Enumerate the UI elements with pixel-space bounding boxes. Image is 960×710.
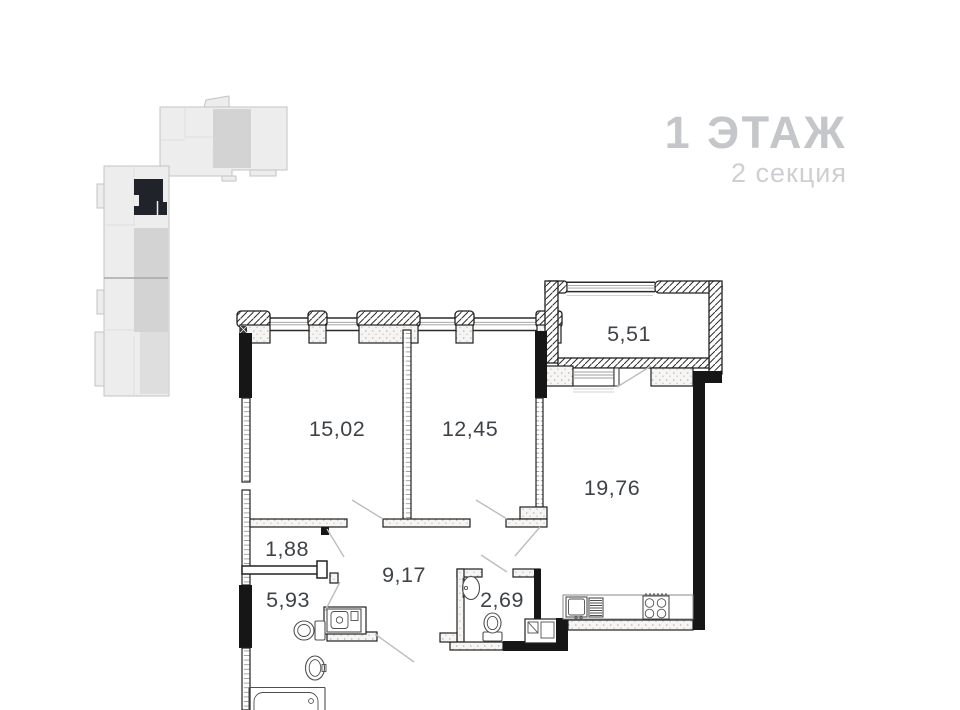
minimap-highlighted-unit	[134, 179, 167, 215]
building-minimap	[95, 96, 287, 396]
area-label-1: 15,02	[309, 417, 365, 441]
area-label-6: 9,17	[382, 563, 426, 587]
area-label-3: 5,51	[607, 322, 651, 346]
balcony-door-leaf	[617, 366, 651, 387]
stove-icon	[643, 594, 669, 619]
area-label-7: 5,93	[266, 588, 310, 612]
door-leaf-room2	[476, 500, 507, 519]
floor-title: 1 ЭТАЖ	[665, 107, 847, 158]
washing-machine-icon	[327, 609, 361, 632]
right-exterior-wall	[693, 371, 722, 630]
floorplan-page: 1 ЭТАЖ 2 секция	[0, 0, 960, 710]
floor-header: 1 ЭТАЖ 2 секция	[665, 107, 847, 188]
sink-icon-wc	[463, 577, 480, 600]
door-leaf-entry	[375, 634, 414, 662]
sink-icon-bathroom	[306, 656, 327, 680]
door-leaf-kitchen	[515, 527, 540, 556]
kitchen-sink-icon	[566, 597, 587, 619]
area-label-4: 19,76	[584, 476, 640, 500]
balcony-window	[573, 368, 619, 386]
area-label-5: 1,88	[265, 537, 309, 561]
door-leaf-wardrobe	[327, 529, 344, 557]
door-leaf-wc	[481, 555, 507, 572]
bathtub-icon	[249, 688, 325, 710]
area-label-8: 2,69	[480, 588, 524, 612]
toilet-icon-bathroom	[294, 621, 325, 640]
column-marker	[240, 326, 247, 333]
door-leaf-room1	[352, 500, 383, 519]
dish-rack-icon	[589, 598, 603, 617]
section-subtitle: 2 секция	[731, 158, 847, 188]
plumbing-shaft	[525, 619, 557, 643]
kitchen-counter	[563, 594, 693, 619]
toilet-icon-wc	[483, 613, 502, 641]
top-exterior-wall	[237, 311, 562, 343]
area-label-2: 12,45	[442, 417, 498, 441]
apartment-floorplan: 15,02 12,45 5,51 19,76 1,88 9,17 5,93 2,…	[237, 281, 722, 710]
